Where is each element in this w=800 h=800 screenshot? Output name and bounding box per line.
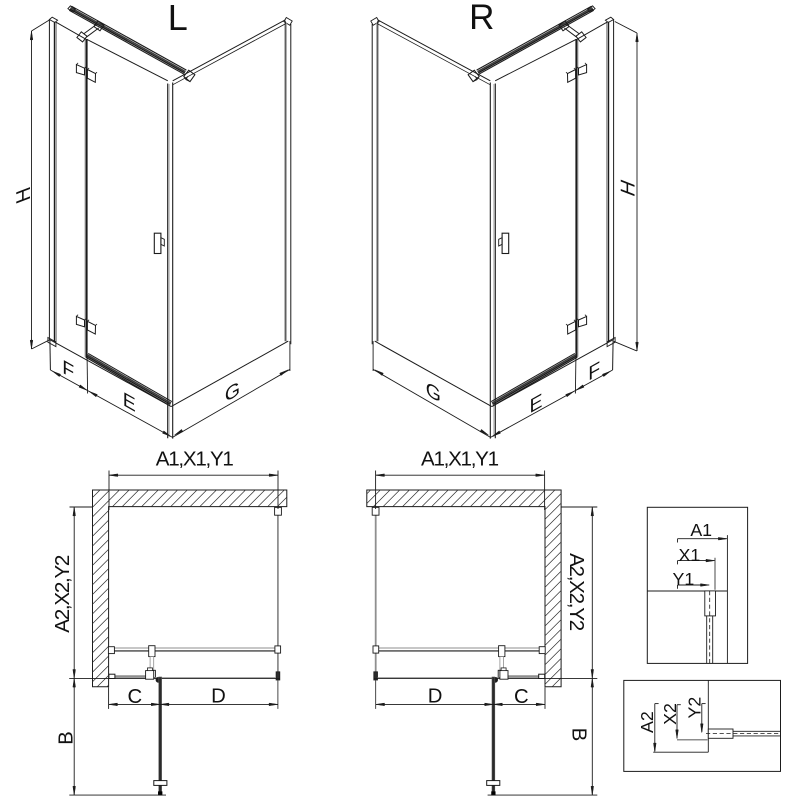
svg-text:A2: A2 [637,711,657,733]
svg-text:Y2: Y2 [685,697,705,719]
svg-text:D: D [211,685,226,707]
svg-text:C: C [127,686,142,708]
svg-text:C: C [514,686,529,708]
svg-text:A1,X1,Y1: A1,X1,Y1 [156,447,234,470]
svg-text:Y1: Y1 [673,569,695,589]
svg-text:X2: X2 [660,703,680,725]
svg-text:A2,X2,Y2: A2,X2,Y2 [565,553,588,631]
svg-text:A2,X2,Y2: A2,X2,Y2 [51,555,74,633]
svg-text:B: B [55,731,77,745]
svg-text:R: R [469,0,494,37]
svg-text:B: B [567,728,589,742]
svg-text:A1,X1,Y1: A1,X1,Y1 [421,447,499,470]
svg-text:D: D [428,685,443,707]
svg-text:A1: A1 [690,520,712,540]
svg-text:L: L [168,0,188,38]
svg-text:X1: X1 [679,545,701,565]
